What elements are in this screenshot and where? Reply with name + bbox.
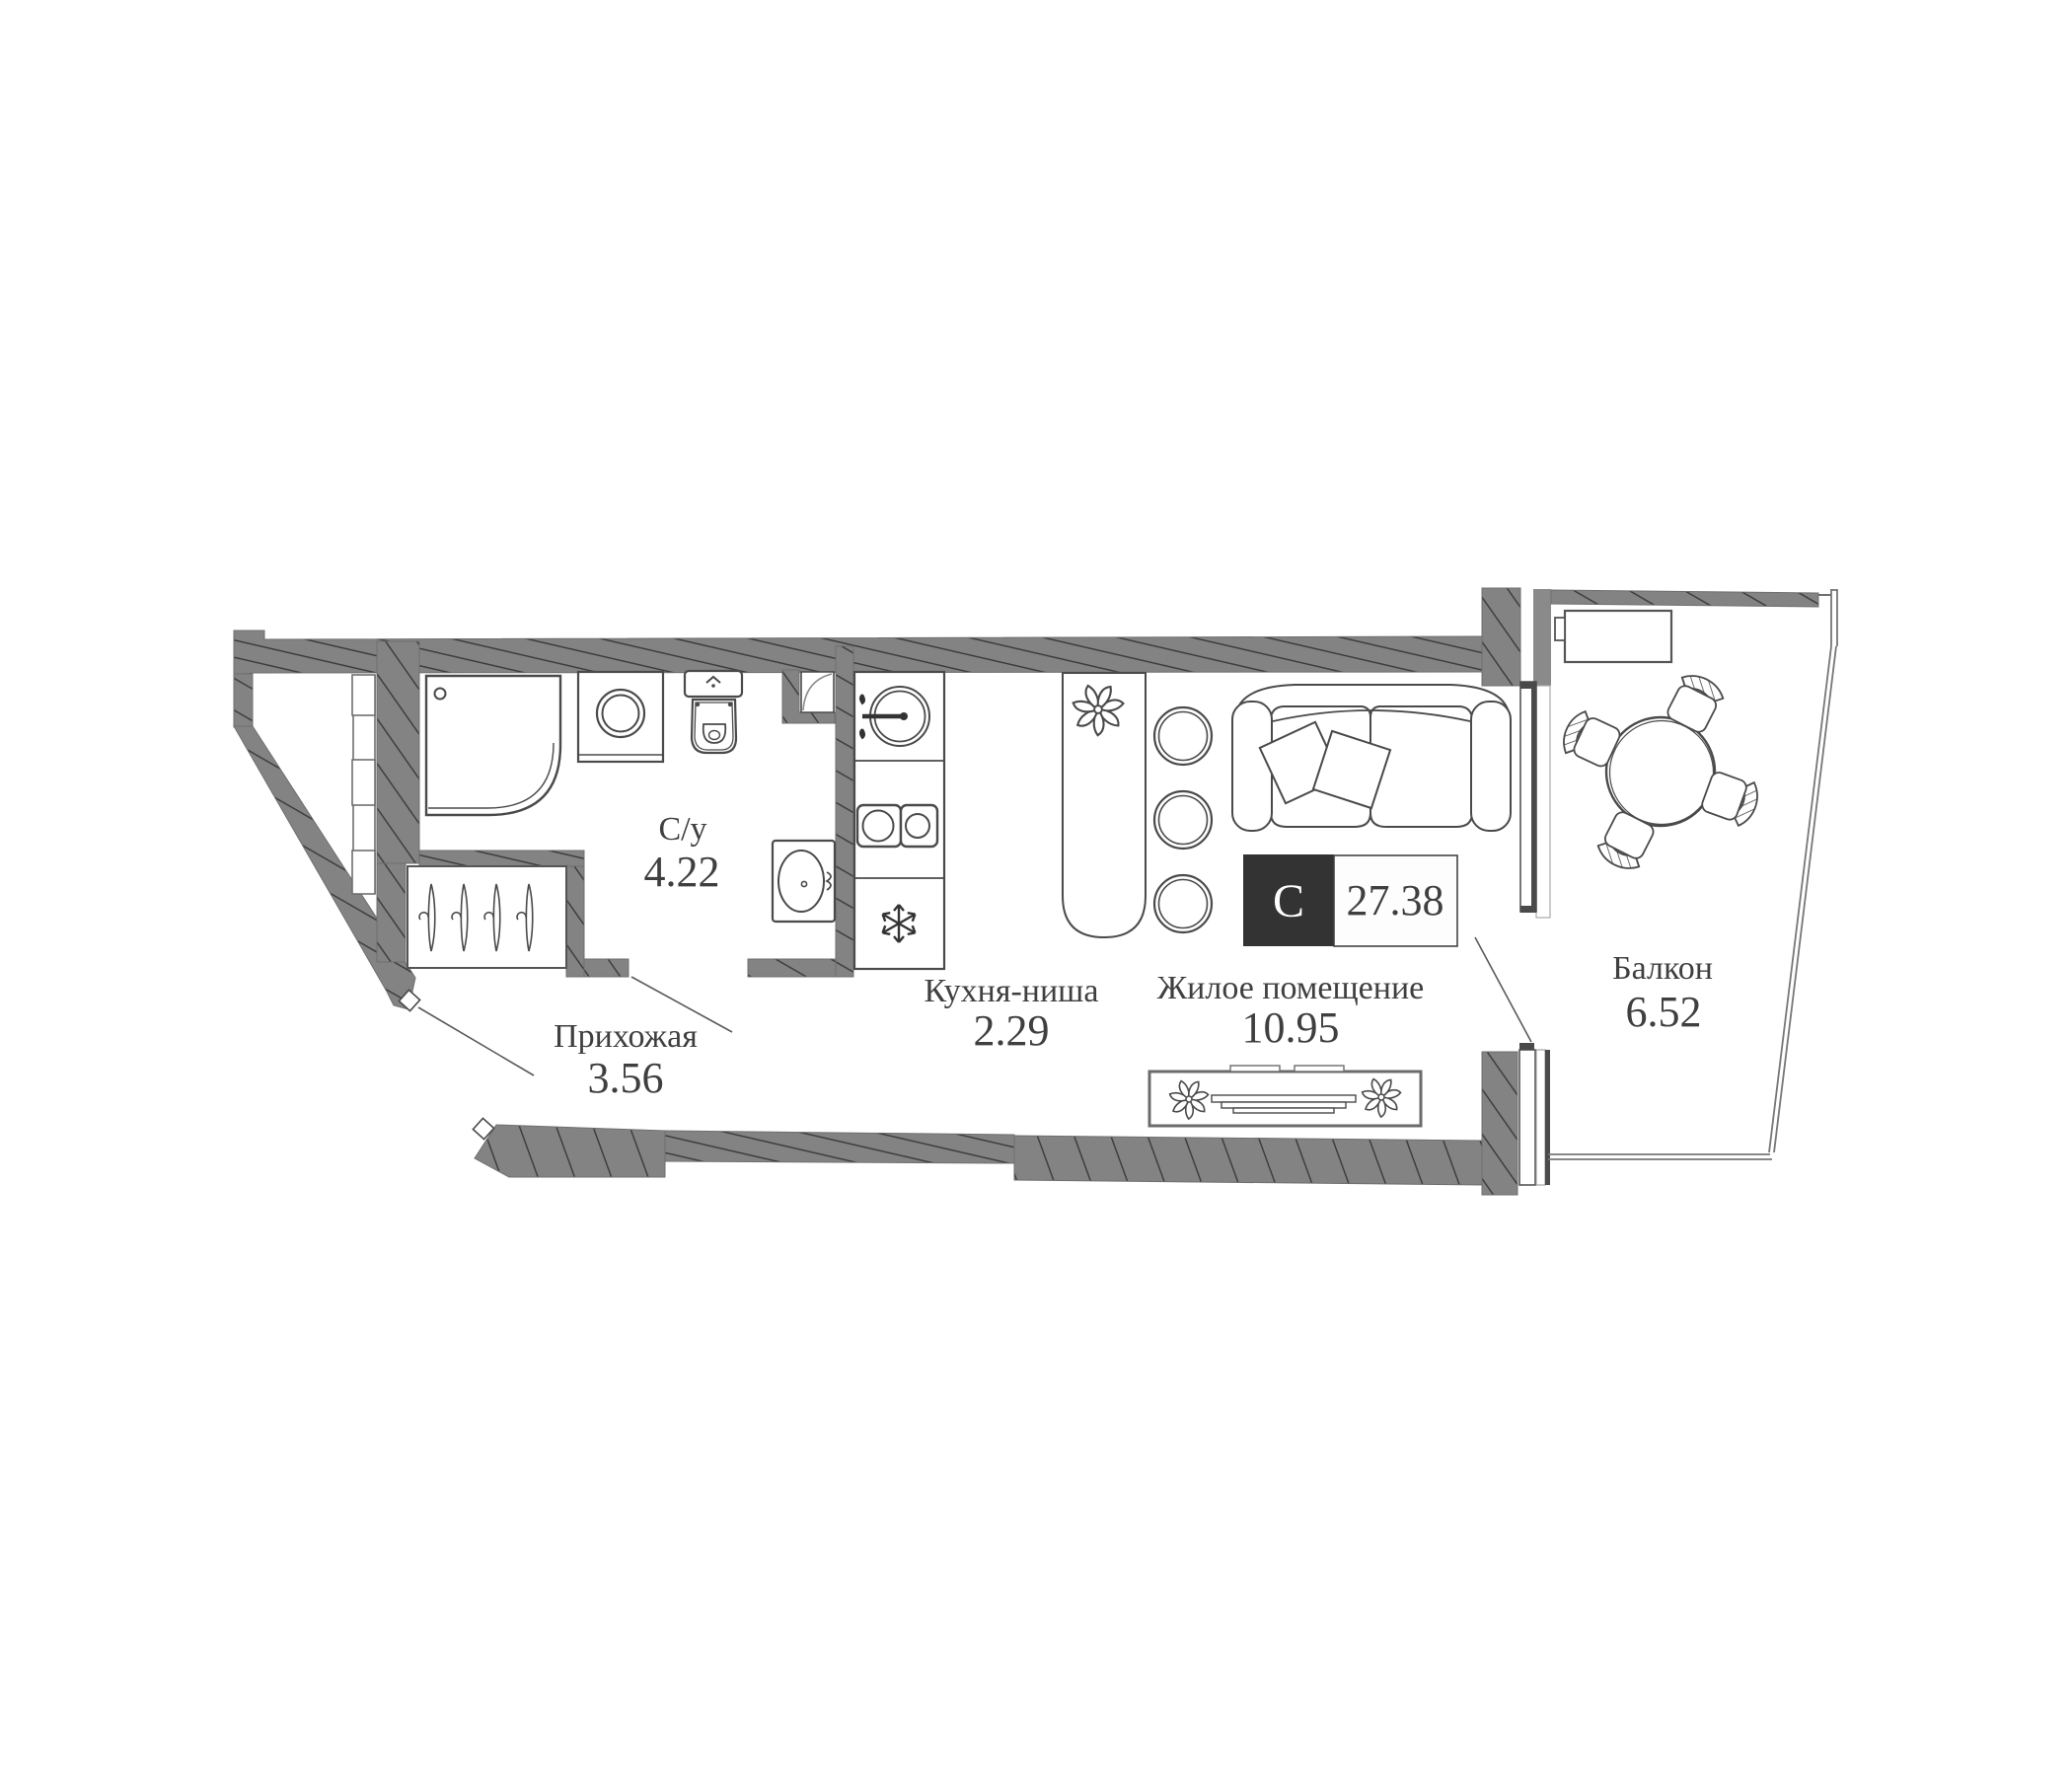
- svg-text:4.22: 4.22: [644, 848, 720, 896]
- svg-text:С: С: [1273, 875, 1304, 927]
- svg-text:10.95: 10.95: [1242, 1003, 1340, 1052]
- svg-text:Жилое помещение: Жилое помещение: [1157, 970, 1425, 1006]
- svg-text:Прихожая: Прихожая: [554, 1018, 698, 1055]
- svg-text:С/у: С/у: [658, 811, 706, 848]
- svg-text:6.52: 6.52: [1626, 988, 1702, 1036]
- svg-text:3.56: 3.56: [588, 1054, 664, 1102]
- svg-text:Балкон: Балкон: [1612, 950, 1713, 987]
- svg-text:2.29: 2.29: [974, 1006, 1050, 1055]
- svg-text:Кухня-ниша: Кухня-ниша: [925, 973, 1099, 1009]
- svg-text:27.38: 27.38: [1347, 876, 1444, 925]
